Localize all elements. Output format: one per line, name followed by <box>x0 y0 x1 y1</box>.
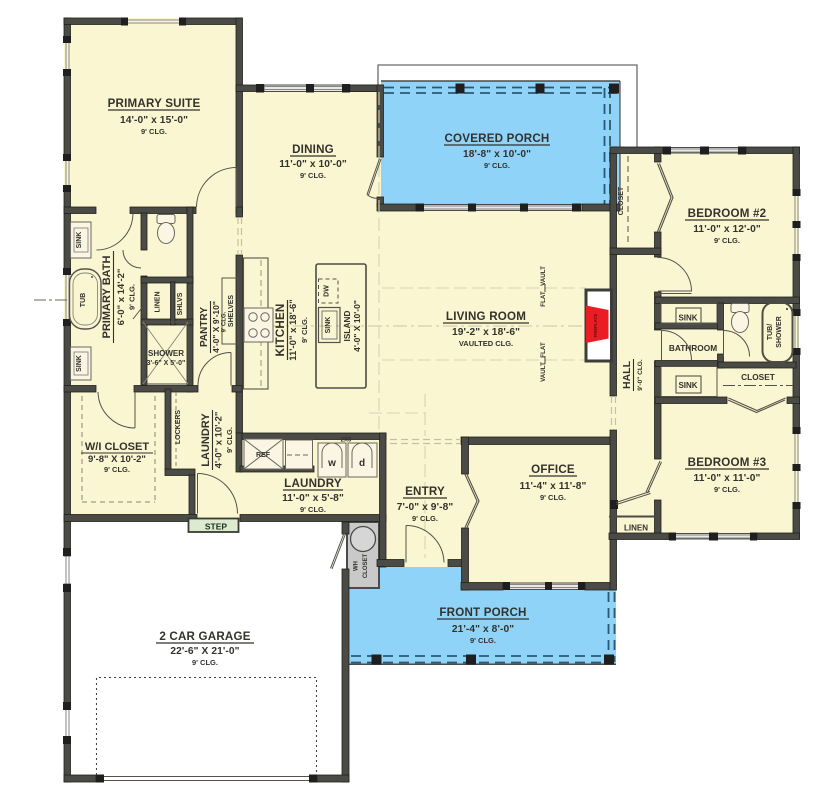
svg-text:7'-0" x 9'-8": 7'-0" x 9'-8" <box>397 502 454 513</box>
svg-text:9' CLG.: 9' CLG. <box>128 284 137 310</box>
svg-text:11'-0" x 10'-0": 11'-0" x 10'-0" <box>279 159 347 170</box>
svg-text:SINK: SINK <box>325 317 332 334</box>
svg-text:CLOSET: CLOSET <box>741 372 775 382</box>
svg-text:LAUNDRY: LAUNDRY <box>284 477 342 490</box>
svg-text:COVERED PORCH: COVERED PORCH <box>444 132 549 145</box>
svg-text:OFFICE: OFFICE <box>531 463 575 476</box>
svg-text:9'-8" X 10'-2": 9'-8" X 10'-2" <box>88 454 146 465</box>
svg-text:SINK: SINK <box>678 381 697 390</box>
svg-text:9' CLG.: 9' CLG. <box>222 311 228 332</box>
svg-text:3'-6" X 5'-0": 3'-6" X 5'-0" <box>147 360 186 367</box>
svg-text:FLAT: FLAT <box>540 342 547 358</box>
svg-text:CLOSET: CLOSET <box>363 554 369 579</box>
svg-text:11'-0" x 11'-0": 11'-0" x 11'-0" <box>694 473 761 484</box>
svg-text:9' CLG.: 9' CLG. <box>300 317 309 343</box>
svg-text:SHELVES: SHELVES <box>228 295 235 327</box>
svg-text:FIREPLACE: FIREPLACE <box>593 313 598 337</box>
svg-text:LINEN: LINEN <box>624 524 648 533</box>
svg-text:11'-0" x 18'-6": 11'-0" x 18'-6" <box>288 299 299 361</box>
svg-text:21'-4" x 8'-0": 21'-4" x 8'-0" <box>452 624 514 635</box>
svg-text:TUB: TUB <box>80 293 87 307</box>
svg-text:9' CLG.: 9' CLG. <box>412 514 438 523</box>
svg-text:ISLAND: ISLAND <box>342 311 352 342</box>
svg-text:19'-2" x 18'-6": 19'-2" x 18'-6" <box>452 327 520 338</box>
svg-text:4'-0" X 9'-10": 4'-0" X 9'-10" <box>211 301 221 353</box>
svg-text:FLAT: FLAT <box>540 291 547 307</box>
svg-text:WH: WH <box>354 561 360 571</box>
svg-text:9' CLG.: 9' CLG. <box>484 161 510 170</box>
svg-text:11'-4" x 11'-8": 11'-4" x 11'-8" <box>520 481 587 492</box>
svg-text:DW: DW <box>324 285 331 297</box>
svg-text:9' CLG.: 9' CLG. <box>540 493 566 502</box>
svg-text:PRIMARY BATH: PRIMARY BATH <box>101 255 113 338</box>
svg-text:VAULTED CLG.: VAULTED CLG. <box>459 339 513 348</box>
svg-text:BATHROOM: BATHROOM <box>669 343 717 353</box>
svg-text:HALL: HALL <box>621 360 633 389</box>
svg-text:REF: REF <box>256 452 271 459</box>
svg-text:22'-6" X 21'-0": 22'-6" X 21'-0" <box>170 646 239 657</box>
svg-text:LAUNDRY: LAUNDRY <box>200 413 212 467</box>
svg-text:4'-0" x 10'-2": 4'-0" x 10'-2" <box>214 412 225 469</box>
svg-text:SINK: SINK <box>76 355 83 372</box>
svg-text:9' CLG.: 9' CLG. <box>192 658 218 667</box>
svg-text:2X6: 2X6 <box>341 438 352 444</box>
svg-text:KITCHEN: KITCHEN <box>274 304 287 357</box>
svg-text:W/I CLOSET: W/I CLOSET <box>85 441 149 453</box>
svg-text:w: w <box>327 458 336 469</box>
svg-text:STEP: STEP <box>205 522 228 532</box>
svg-text:9' CLG.: 9' CLG. <box>300 171 326 180</box>
svg-text:LOCKERS: LOCKERS <box>175 410 182 445</box>
svg-text:2 CAR GARAGE: 2 CAR GARAGE <box>159 630 250 643</box>
svg-text:9'-0" CLG.: 9'-0" CLG. <box>637 359 644 391</box>
svg-text:11'-0" x 5'-8": 11'-0" x 5'-8" <box>282 493 344 504</box>
svg-text:SINK: SINK <box>76 232 83 249</box>
svg-text:SINK: SINK <box>678 314 697 323</box>
svg-text:VAULT: VAULT <box>540 266 547 286</box>
svg-text:BEDROOM #3: BEDROOM #3 <box>688 456 767 469</box>
svg-text:9' CLG.: 9' CLG. <box>104 465 130 474</box>
svg-text:BEDROOM #2: BEDROOM #2 <box>688 207 767 220</box>
svg-text:FRONT PORCH: FRONT PORCH <box>439 606 526 619</box>
svg-text:VAULT: VAULT <box>540 362 547 382</box>
svg-text:14'-0" x 15'-0": 14'-0" x 15'-0" <box>120 115 188 126</box>
svg-text:PANTRY: PANTRY <box>199 307 210 347</box>
svg-text:9' CLG.: 9' CLG. <box>141 127 167 136</box>
svg-text:TUB/: TUB/ <box>767 324 774 340</box>
svg-text:9' CLG.: 9' CLG. <box>300 505 326 514</box>
svg-text:18'-8" x 10'-0": 18'-8" x 10'-0" <box>463 149 531 160</box>
svg-text:9' CLG.: 9' CLG. <box>225 427 234 453</box>
svg-text:9' CLG.: 9' CLG. <box>714 485 740 494</box>
svg-text:CLOSET: CLOSET <box>618 186 625 215</box>
svg-text:SHOWER: SHOWER <box>148 349 184 358</box>
svg-text:11'-0" x 12'-0": 11'-0" x 12'-0" <box>693 224 761 235</box>
svg-text:4'-0" X 10'-0": 4'-0" X 10'-0" <box>352 300 362 352</box>
svg-text:LINEN: LINEN <box>155 292 162 313</box>
svg-text:9' CLG.: 9' CLG. <box>714 236 740 245</box>
svg-text:LIVING ROOM: LIVING ROOM <box>446 310 526 323</box>
svg-text:SHOWER: SHOWER <box>776 316 783 348</box>
svg-text:d: d <box>359 458 365 469</box>
svg-text:PRIMARY SUITE: PRIMARY SUITE <box>108 97 201 110</box>
svg-text:ENTRY: ENTRY <box>405 485 445 498</box>
svg-text:9' CLG.: 9' CLG. <box>470 636 496 645</box>
svg-text:DINING: DINING <box>292 143 334 156</box>
svg-text:SHLVS: SHLVS <box>177 292 184 315</box>
svg-text:6'-0" x 14'-2": 6'-0" x 14'-2" <box>116 269 127 326</box>
